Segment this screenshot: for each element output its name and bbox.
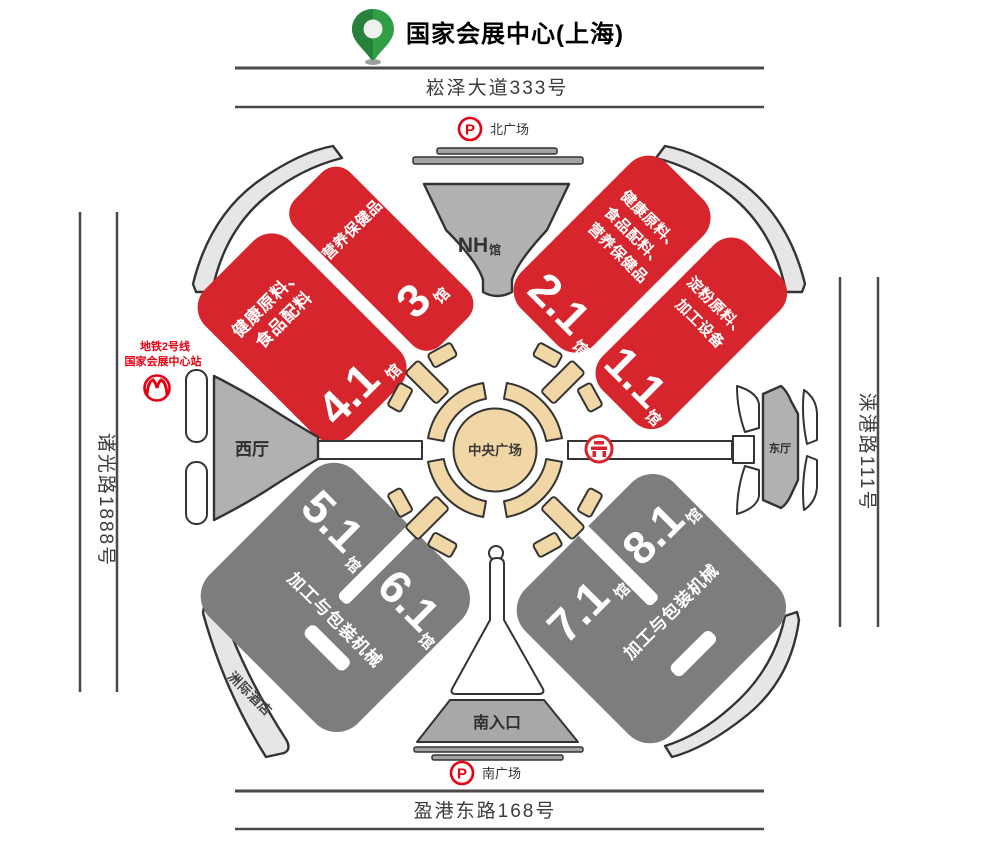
east-flank-left-top	[737, 386, 759, 432]
east-flank-right-bottom	[803, 456, 817, 510]
north-road: 崧泽大道333号	[235, 68, 764, 107]
central-plaza-label: 中央广场	[468, 442, 522, 458]
south-entrance: 南入口	[417, 700, 578, 742]
north-strip-small	[437, 148, 557, 154]
parking-icon: P	[465, 122, 475, 139]
west-corridor	[318, 441, 422, 459]
north-strip-large	[413, 157, 583, 164]
east-hall: 东厅	[733, 386, 817, 514]
east-road: 涞港路111号	[840, 277, 878, 627]
west-pill-top	[186, 370, 207, 442]
south-parking: P 南广场	[451, 762, 521, 784]
north-road-label: 崧泽大道333号	[426, 77, 569, 99]
central-plaza: 中央广场	[454, 409, 537, 492]
south-plaza-label: 南广场	[482, 766, 521, 781]
east-hall-label: 东厅	[769, 441, 791, 455]
west-road-label: 诸光路1888号	[95, 433, 117, 567]
west-pill-bottom	[186, 462, 207, 524]
east-road-label: 涞港路111号	[856, 393, 878, 512]
east-flank-left-bottom	[737, 466, 759, 514]
shanghai-metro-icon	[145, 376, 170, 401]
nh-hall-suffix: 馆	[489, 242, 501, 257]
venue-map: 国家会展中心(上海) 崧泽大道333号 P 北广场 诸光路1888号 涞港路11…	[0, 0, 1000, 868]
metro-station-label: 国家会展中心站	[125, 354, 202, 368]
south-strip-large	[414, 747, 583, 752]
north-plaza-label: 北广场	[490, 122, 529, 137]
map-canvas: 国家会展中心(上海) 崧泽大道333号 P 北广场 诸光路1888号 涞港路11…	[0, 0, 1000, 868]
west-road: 诸光路1888号	[80, 212, 117, 692]
page-title: 国家会展中心(上海)	[406, 20, 624, 48]
parking-icon-south: P	[457, 766, 467, 783]
east-flank-right-top	[803, 390, 817, 444]
map-pin-icon	[352, 9, 394, 65]
south-entrance-label: 南入口	[473, 713, 521, 732]
venue-logo-icon	[586, 436, 612, 462]
metro-line-label: 地铁2号线	[140, 339, 190, 353]
south-road-label: 盈港东路168号	[414, 800, 557, 822]
south-strip-small	[432, 755, 563, 760]
north-parking: P 北广场	[459, 118, 529, 140]
south-road: 盈港东路168号	[235, 791, 764, 829]
west-hall-label: 西厅	[235, 440, 269, 459]
east-connector-box	[733, 436, 754, 463]
nh-hall-label: NH	[458, 234, 488, 257]
